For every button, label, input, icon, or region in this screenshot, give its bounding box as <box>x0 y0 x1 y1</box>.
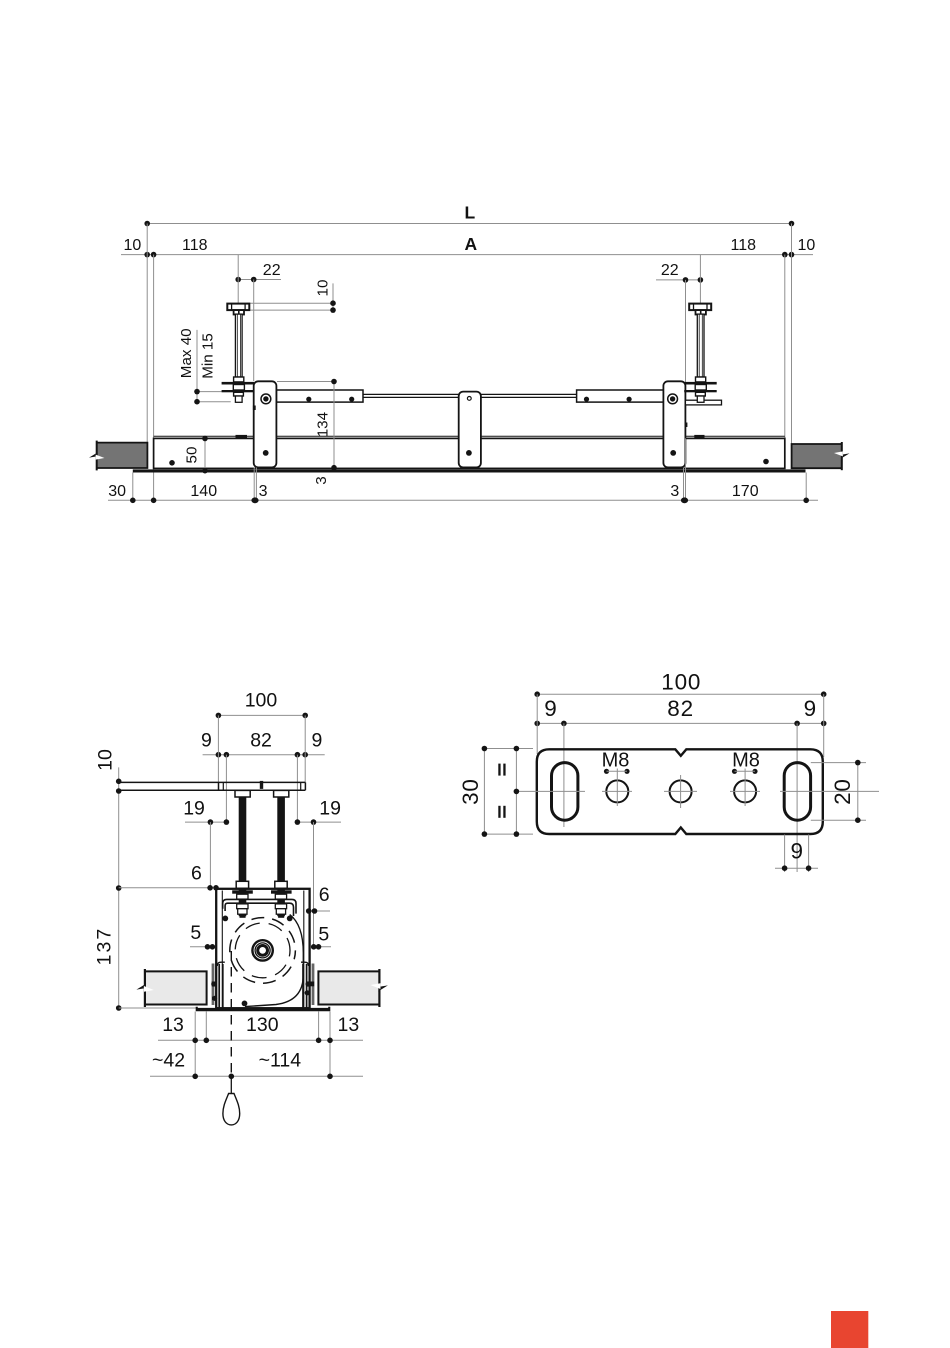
svg-text:20: 20 <box>830 778 855 805</box>
svg-text:19: 19 <box>319 798 341 820</box>
svg-text:5: 5 <box>190 922 201 944</box>
svg-text:22: 22 <box>661 262 679 279</box>
svg-text:~114: ~114 <box>259 1049 302 1071</box>
svg-text:13: 13 <box>338 1014 360 1036</box>
svg-text:A: A <box>465 234 478 254</box>
svg-text:19: 19 <box>183 798 205 820</box>
svg-text:140: 140 <box>190 483 217 500</box>
svg-text:9: 9 <box>791 839 804 864</box>
svg-text:13: 13 <box>162 1014 184 1036</box>
svg-text:9: 9 <box>804 696 817 721</box>
svg-text:3: 3 <box>313 476 330 484</box>
svg-text:10: 10 <box>798 237 816 254</box>
svg-text:118: 118 <box>731 237 757 254</box>
svg-text:137: 137 <box>94 927 116 966</box>
svg-text:100: 100 <box>661 670 701 695</box>
svg-text:170: 170 <box>732 483 759 500</box>
svg-text:50: 50 <box>184 447 201 464</box>
svg-text:130: 130 <box>246 1014 279 1036</box>
svg-text:6: 6 <box>319 884 330 906</box>
svg-text:30: 30 <box>458 778 483 805</box>
svg-text:10: 10 <box>124 237 142 254</box>
svg-text:M8: M8 <box>602 749 630 771</box>
svg-text:Min 15: Min 15 <box>199 333 216 379</box>
svg-text:M8: M8 <box>732 749 760 771</box>
svg-text:10: 10 <box>315 280 332 297</box>
svg-text:Max 40: Max 40 <box>178 328 195 378</box>
svg-text:9: 9 <box>312 729 323 751</box>
svg-text:3: 3 <box>259 483 268 500</box>
svg-text:10: 10 <box>94 749 116 771</box>
svg-text:100: 100 <box>245 689 278 711</box>
svg-text:30: 30 <box>108 483 126 500</box>
svg-text:82: 82 <box>667 696 694 721</box>
svg-text:6: 6 <box>191 863 202 885</box>
svg-text:~42: ~42 <box>152 1049 185 1071</box>
svg-text:82: 82 <box>250 729 272 751</box>
svg-text:118: 118 <box>182 237 208 254</box>
svg-text:9: 9 <box>544 696 557 721</box>
svg-text:134: 134 <box>314 412 331 437</box>
svg-text:5: 5 <box>318 923 329 945</box>
svg-text:9: 9 <box>201 729 212 751</box>
svg-text:L: L <box>465 203 476 223</box>
svg-text:22: 22 <box>263 262 281 279</box>
svg-text:3: 3 <box>670 483 679 500</box>
